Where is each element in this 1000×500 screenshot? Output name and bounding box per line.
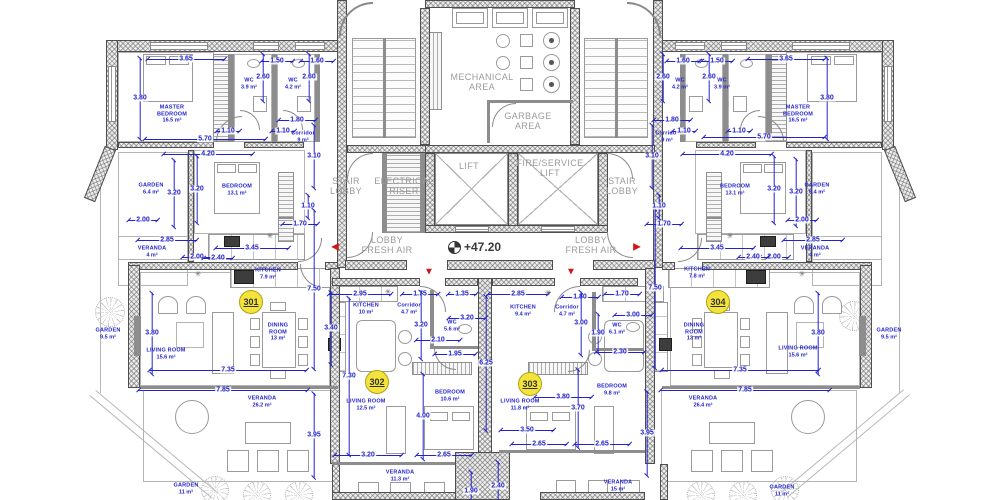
room-label: KITCHEN10 m² — [353, 303, 379, 316]
wall — [447, 260, 553, 270]
room-label: Corridor4.7 m² — [555, 305, 579, 318]
wall — [540, 492, 645, 500]
stove — [659, 338, 672, 351]
tree-icon — [286, 482, 312, 500]
dimension-label: 3.80 — [819, 95, 835, 102]
dimension-label: 1.60 — [309, 58, 325, 65]
dimension-label: 2.00 — [135, 217, 151, 224]
dimension-label: 3.80 — [144, 330, 160, 337]
unit-number-badge: 301 — [239, 290, 263, 314]
dimension-label: 2.60 — [301, 74, 317, 81]
room-label: WC4.2 m² — [285, 78, 301, 91]
dimension-label: 1.35 — [454, 291, 470, 298]
room-label: LIVING ROOM15.6 m² — [778, 346, 817, 359]
window — [108, 66, 116, 122]
stove — [746, 270, 766, 284]
dimension-label: 1.10 — [676, 128, 692, 135]
armchair — [822, 296, 842, 314]
dimension-label: 3.20 — [166, 190, 182, 197]
dimension-label: 3.80 — [810, 330, 826, 337]
planter — [721, 450, 743, 472]
shower — [689, 96, 703, 112]
entry-arrow-icon: ▶ — [633, 242, 641, 253]
dimension-label: 2.40 — [210, 255, 226, 262]
pillow — [452, 412, 470, 421]
wall — [345, 260, 407, 270]
room-label: VERANDA4 m² — [138, 246, 167, 259]
dimension-label: 4.20 — [719, 151, 735, 158]
room-label: BEDROOM10.6 m² — [435, 390, 465, 403]
dimension-label: 2.00 — [794, 217, 810, 224]
wall — [580, 278, 638, 286]
planter — [227, 450, 249, 472]
planter — [287, 450, 309, 472]
dimension-label: 2.60 — [655, 74, 671, 81]
pillow — [217, 164, 236, 173]
dimension-label: 1.80 — [664, 117, 680, 124]
dimension-label: 3.45 — [244, 245, 260, 252]
dimension-label: 3.70 — [570, 405, 586, 412]
window — [253, 42, 279, 50]
dimension-label: 3.00 — [573, 320, 589, 327]
room-label: BEDROOM13.1 m² — [222, 184, 252, 197]
dimension-label: 7.85 — [215, 387, 231, 394]
toilet — [626, 322, 640, 332]
pillow — [834, 56, 854, 65]
round-table — [791, 400, 825, 434]
dimension-label: 3.20 — [766, 186, 782, 193]
chair — [270, 370, 286, 379]
unit-number-badge: 304 — [706, 290, 730, 314]
dimension-label: 6.25 — [478, 360, 494, 367]
dimension-label: 5.70 — [756, 134, 772, 141]
chair — [714, 370, 730, 379]
dimension-label: 1.10 — [731, 128, 747, 135]
dimension-label: 1.90 — [463, 488, 479, 495]
veranda-rail — [499, 450, 645, 453]
wall — [592, 292, 596, 348]
level-value: +47.20 — [464, 240, 501, 254]
room-label: WC4.2 m² — [672, 78, 688, 91]
wall — [420, 8, 430, 145]
planter — [751, 450, 773, 472]
dimension-label: 2.40 — [490, 483, 506, 490]
stove — [760, 236, 776, 247]
wall — [490, 100, 573, 103]
dimension-label: 3.20 — [788, 189, 804, 196]
property-line — [100, 168, 101, 393]
wall — [696, 142, 756, 148]
ahu-unit — [492, 8, 528, 28]
kitchen-counter — [654, 302, 668, 372]
ahu-unit — [452, 8, 488, 28]
dimension-label: 3.10 — [306, 153, 322, 160]
toilet — [458, 324, 472, 334]
dimension-label: 3.40 — [323, 325, 339, 332]
dimension-label: 3.65 — [778, 56, 794, 63]
fixture — [520, 78, 533, 91]
dimension-label: 2.40 — [745, 254, 761, 261]
wall — [570, 8, 580, 145]
window — [150, 42, 208, 50]
dimension-label: 1.10 — [220, 128, 236, 135]
toilet — [247, 59, 260, 68]
wall — [337, 0, 347, 268]
louver — [428, 32, 442, 110]
dimension-label: 3.65 — [178, 56, 194, 63]
planter — [257, 450, 279, 472]
window — [721, 42, 747, 50]
dimension-label: 1.80 — [289, 117, 305, 124]
rug — [176, 322, 204, 348]
pump-unit — [543, 54, 560, 71]
sofa — [709, 422, 755, 444]
dimension-label: 2.85 — [510, 291, 526, 298]
room-label: LIVING ROOM11.8 m² — [500, 399, 539, 412]
pillow — [430, 412, 448, 421]
dimension-label: 2.65 — [594, 441, 610, 448]
room-label: KITCHEN9.4 m² — [510, 305, 536, 318]
wall — [425, 145, 655, 153]
unit-number-badge: 303 — [518, 372, 542, 396]
core-area-label: GARBAGE AREA — [504, 111, 551, 131]
room-label: GARDEN9.5 m² — [876, 328, 901, 341]
property-line — [899, 168, 900, 393]
room-label: Corridor4.7 m² — [397, 303, 421, 316]
dimension-label: 3.20 — [459, 315, 475, 322]
chair — [740, 318, 750, 330]
tree-icon — [730, 482, 756, 500]
room-label: VERANDA26.2 m² — [248, 396, 277, 409]
entry-arrow-icon: ▼ — [424, 267, 434, 278]
planter — [691, 450, 713, 472]
dining-table — [704, 312, 738, 368]
dimension-label: 7.85 — [737, 387, 753, 394]
chair — [298, 354, 308, 366]
dimension-label: 3.80 — [555, 394, 571, 401]
floor-plan: +47.20 3.651.501.602.602.603.805.701.101… — [0, 0, 1000, 500]
stool — [398, 330, 412, 344]
dimension-label: 2.60 — [701, 74, 717, 81]
sink-icon: ✳ — [267, 232, 274, 241]
tv-unit — [859, 316, 866, 356]
dimension-label: 2.65 — [436, 452, 452, 459]
stair-rail — [615, 38, 618, 138]
dimension-label: 1.60 — [675, 58, 691, 65]
sofa — [386, 406, 406, 454]
sofa — [212, 312, 234, 374]
room-label: GARDEN11 m² — [173, 483, 198, 496]
unit-number-badge: 302 — [365, 370, 389, 394]
sofa — [245, 422, 291, 444]
dimension-label: 3.10 — [644, 153, 660, 160]
chair — [298, 336, 308, 348]
room-label: BEDROOM13.1 m² — [720, 184, 750, 197]
wall — [188, 150, 194, 262]
wall — [425, 225, 608, 233]
dimension-label: 7.50 — [647, 285, 663, 292]
wall — [332, 492, 458, 500]
pillow — [743, 164, 762, 173]
tree-icon — [244, 482, 270, 500]
wall — [315, 54, 320, 142]
level-symbol-icon — [448, 241, 461, 254]
window — [792, 42, 850, 50]
kitchen-island — [356, 320, 396, 372]
wall — [445, 278, 478, 286]
dimension-label: 3.20 — [189, 186, 205, 193]
lift-door — [455, 226, 489, 232]
core-area-label: ELECTRICAL RISER — [374, 176, 434, 196]
dimension-label: 3.00 — [625, 312, 641, 319]
room-label: GARDEN9.5 m² — [95, 328, 120, 341]
stool — [398, 352, 412, 366]
stove — [234, 270, 254, 284]
ahu-unit — [532, 8, 568, 28]
room-label: KITCHEN7.8 m² — [684, 267, 710, 280]
dimension-label: 2.10 — [430, 337, 446, 344]
chair — [298, 318, 308, 330]
room-label: GARDEN11 m² — [769, 485, 794, 498]
armchair — [186, 296, 206, 314]
dimension-label: 3.50 — [519, 427, 535, 434]
tv-unit — [134, 316, 141, 356]
fixture — [520, 34, 533, 47]
entry-arrow-icon: ◀ — [331, 242, 339, 253]
sink-icon: ✳ — [727, 232, 734, 241]
dimension-label: 1.70 — [614, 291, 630, 298]
dimension-label: 4.00 — [415, 413, 431, 420]
fixture — [496, 56, 510, 70]
wall — [332, 278, 420, 286]
dimension-label: 1.10 — [275, 128, 291, 135]
chair — [270, 302, 286, 311]
pillow — [530, 412, 548, 421]
wall — [702, 262, 872, 270]
wall — [662, 262, 675, 270]
dimension-label: 1.70 — [292, 221, 308, 228]
core-area-label: STAIR LOBBY — [330, 176, 362, 196]
room-label: WC5.6 m² — [444, 320, 460, 333]
tree-icon — [202, 477, 228, 500]
dimension-label: 1.10 — [651, 203, 667, 210]
window — [884, 66, 892, 122]
tree-icon — [96, 298, 124, 326]
room-label: VERANDA11.3 m² — [386, 470, 415, 483]
wall — [118, 142, 214, 148]
room-label: Corridor9 m² — [291, 131, 315, 144]
dimension-label: 3.95 — [306, 432, 322, 439]
dimension-label: 4.20 — [200, 151, 216, 158]
wall — [487, 100, 490, 143]
sink-icon: ✳ — [799, 270, 806, 279]
dimension-label: 1.50 — [269, 58, 285, 65]
stove — [224, 236, 240, 247]
dimension-label: 2.85 — [805, 237, 821, 244]
room-label: KITCHEN7.9 m² — [255, 268, 281, 281]
dimension-label: 1.50 — [709, 58, 725, 65]
room-label: DINING ROOM13 m² — [268, 322, 288, 342]
dimension-label: 7.30 — [341, 373, 357, 380]
chair — [740, 336, 750, 348]
dimension-label: 3.20 — [360, 452, 376, 459]
core-area-label: LIFT — [459, 161, 479, 171]
dimension-label: 5.70 — [197, 136, 213, 143]
core-area-label: FIRE/SERVICE LIFT — [516, 158, 583, 178]
room-label: DINING ROOM13 m² — [684, 322, 704, 342]
wall — [884, 146, 916, 202]
chair — [250, 354, 260, 366]
room-label: LIVING ROOM12.5 m² — [346, 399, 385, 412]
stair-rail — [383, 38, 386, 138]
wall — [492, 278, 555, 286]
shower — [733, 96, 747, 112]
sink-icon: ✳ — [195, 270, 202, 279]
chair — [692, 354, 702, 366]
wall — [786, 142, 882, 148]
room-label: VERANDA4 m² — [801, 246, 830, 259]
dimension-label: 2.65 — [531, 441, 547, 448]
dimension-label: 2.95 — [352, 291, 368, 298]
pump-unit — [543, 76, 560, 93]
room-label: WC6.1 m² — [609, 323, 625, 336]
room-label: GARDEN6.4 m² — [138, 183, 163, 196]
dimension-label: 2.60 — [255, 74, 271, 81]
room-label: BEDROOM9.8 m² — [597, 384, 627, 397]
tree-icon — [688, 482, 714, 500]
chair — [250, 336, 260, 348]
dimension-label: 7.35 — [220, 367, 236, 374]
dimension-label: 1.90 — [590, 330, 606, 337]
core-area-label: LOBBY FRESH AIR — [565, 235, 616, 255]
sofa — [766, 312, 788, 374]
entry-arrow-icon: ▼ — [566, 267, 576, 278]
room-label: MASTER BEDROOM16.5 m² — [783, 104, 813, 124]
dimension-label: 3.20 — [413, 322, 429, 329]
core-area-label: LOBBY FRESH AIR — [361, 235, 412, 255]
room-label: VERANDA26.4 m² — [689, 396, 718, 409]
pillow — [238, 164, 257, 173]
core-area-label: STAIR LOBBY — [606, 176, 638, 196]
dimension-label: 3.45 — [709, 245, 725, 252]
pump-unit — [543, 32, 560, 49]
dimension-label: 2.85 — [159, 237, 175, 244]
wall — [660, 464, 668, 500]
wardrobe — [706, 218, 722, 242]
fixture — [496, 34, 510, 48]
dimension-label: 7.35 — [732, 367, 748, 374]
dimension-label: 7.50 — [306, 286, 322, 293]
armchair — [158, 296, 178, 314]
room-label: MASTER BEDROOM16.5 m² — [157, 104, 187, 124]
dimension-label: 1.95 — [447, 351, 463, 358]
window — [675, 42, 705, 50]
chair — [250, 318, 260, 330]
fixture — [520, 56, 533, 69]
wall — [425, 0, 575, 8]
dimension-label: 1.70 — [656, 221, 672, 228]
room-label: GARDEN6.4 m² — [804, 183, 829, 196]
dimension-label: 3.80 — [132, 95, 148, 102]
round-table — [175, 400, 209, 434]
pillow — [552, 412, 570, 421]
lift-door — [541, 226, 575, 232]
door-arc — [298, 238, 322, 262]
armchair — [794, 296, 814, 314]
chair — [740, 354, 750, 366]
wardrobe — [278, 172, 294, 218]
window — [295, 42, 325, 50]
dimension-label: 3.95 — [639, 430, 655, 437]
wall — [347, 145, 427, 153]
core-area-label: MECHANICAL AREA — [450, 72, 513, 92]
room-label: VERANDA15 m² — [604, 480, 633, 493]
dimension-label: 2.30 — [612, 349, 628, 356]
level-marker: +47.20 — [448, 240, 501, 254]
